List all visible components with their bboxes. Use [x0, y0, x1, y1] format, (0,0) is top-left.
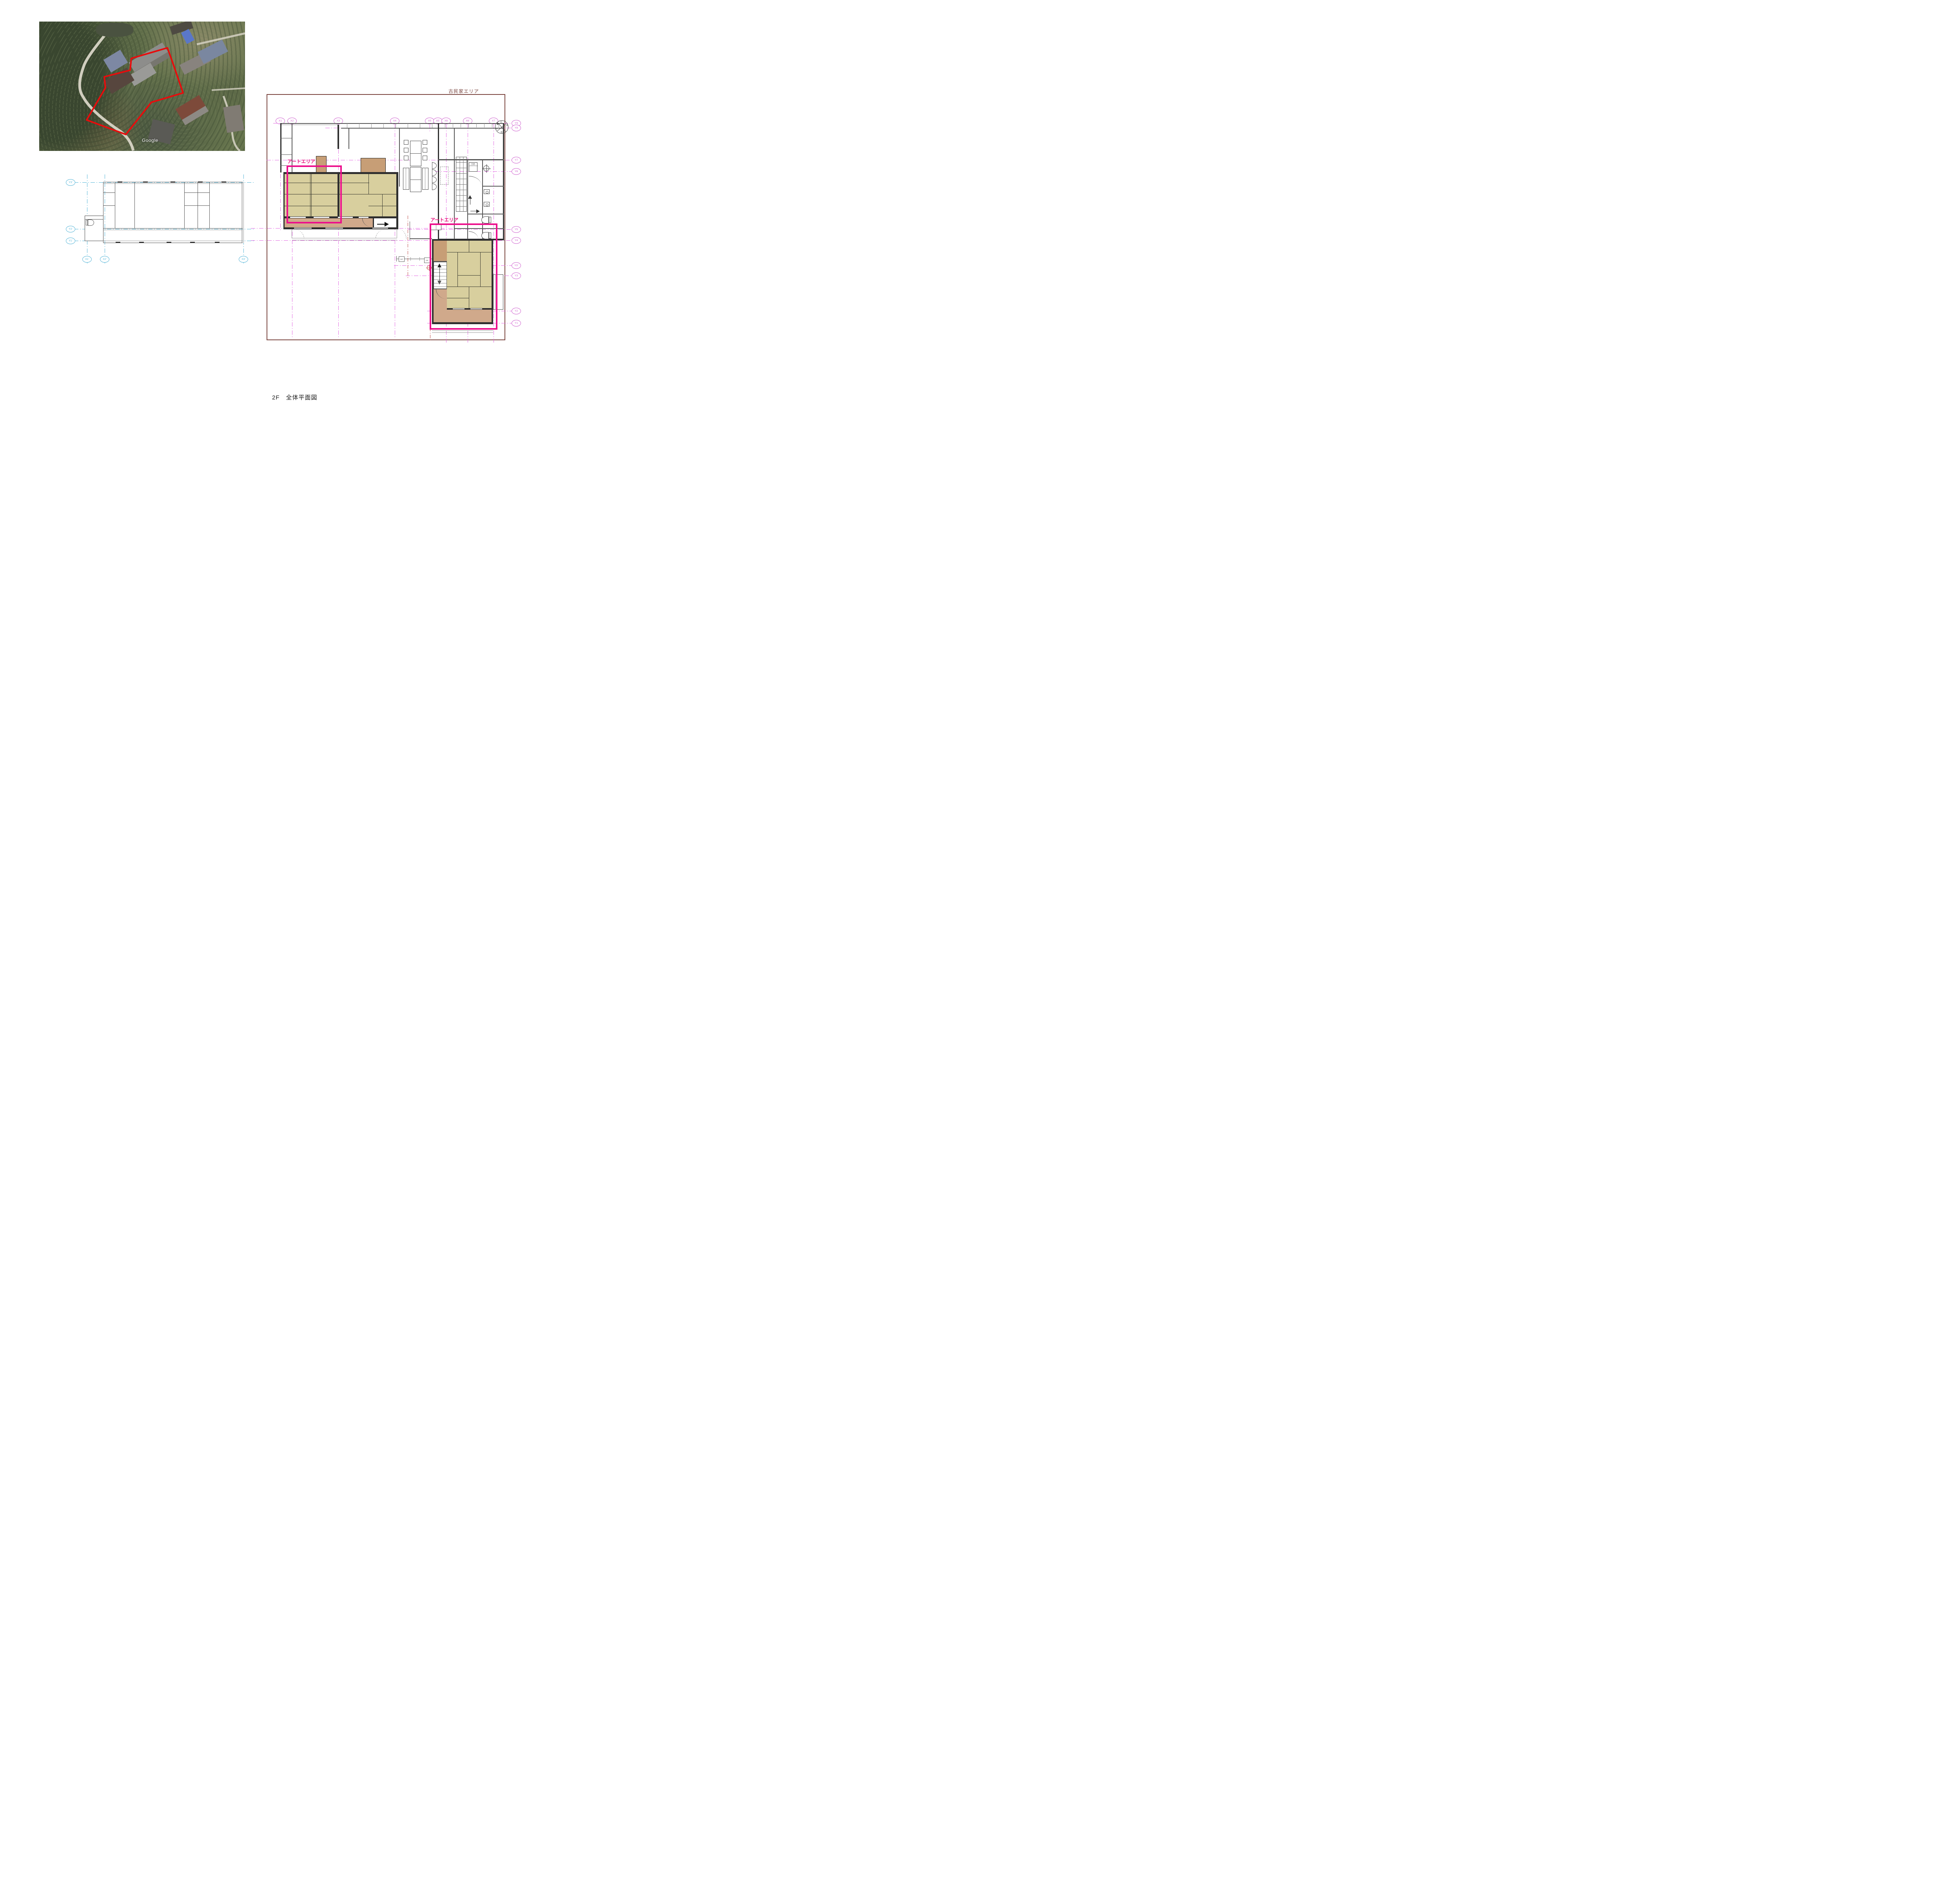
drawing-sheet: Google 古民家エリア X1X2X3X4X5X5'X6X6'X7Y9Y8Y7… — [0, 0, 606, 425]
rail-post — [396, 123, 396, 128]
rail-post — [359, 123, 359, 128]
sink-basin — [486, 191, 488, 194]
wall-top-rail — [280, 123, 504, 124]
shower-head — [483, 165, 489, 171]
north-compass: 北 東 西 南 — [495, 120, 508, 134]
mat-line — [368, 206, 396, 206]
mullion — [468, 123, 469, 127]
bench-line — [425, 168, 425, 190]
window — [294, 228, 312, 229]
chair — [423, 140, 427, 145]
rail-post — [347, 123, 347, 128]
tatami-room-east — [339, 174, 396, 216]
chair — [404, 140, 408, 145]
wall-hall — [348, 128, 349, 149]
mullion — [484, 123, 485, 127]
door-leaf — [432, 169, 437, 176]
mat-line — [382, 194, 383, 216]
art-area-label-upper: アートエリア — [287, 158, 315, 165]
wall-connector-bottom — [410, 238, 432, 239]
rail-post — [419, 257, 420, 261]
wall-bath-right — [503, 123, 504, 240]
mat-line — [339, 194, 396, 194]
door-leaf — [432, 162, 437, 169]
closet-shelf — [280, 154, 292, 155]
mullion — [445, 123, 445, 127]
wall-corridor-toilet — [467, 214, 504, 214]
wall-shower-sink — [482, 186, 504, 187]
arrow-shaft — [470, 211, 476, 211]
wall-connector — [410, 221, 410, 240]
dp-box-right: DP — [424, 258, 430, 263]
door-leaf — [432, 176, 437, 183]
chair — [423, 156, 427, 160]
compass-n: 北 — [500, 121, 502, 123]
arrow-shaft — [377, 224, 385, 225]
table-seam — [410, 153, 421, 154]
wall-top-main — [341, 128, 504, 129]
red-survey-line-1 — [408, 216, 408, 278]
dp-label: DP — [400, 258, 403, 260]
mullion — [461, 123, 461, 127]
chair — [423, 148, 427, 152]
rail-post — [396, 256, 397, 261]
wall-top-inner — [280, 125, 338, 125]
sink-1 — [484, 189, 490, 194]
rail-post — [432, 123, 432, 128]
eave-end — [292, 229, 292, 238]
dryer-label-3: W653×D674×H671 — [469, 166, 477, 167]
wall-x3-upper — [338, 125, 339, 149]
entry-arrow — [377, 222, 389, 227]
window — [372, 228, 388, 229]
compass-e: 東 — [506, 124, 508, 127]
arrow-head — [476, 209, 480, 213]
wall-tatami-right — [396, 172, 398, 229]
closet-dashed — [440, 167, 448, 185]
washer-dryer: 乾燥機 リンナイ W653×D674×H671 — [469, 162, 477, 172]
dp-box-left: DP — [399, 256, 405, 262]
bench — [403, 168, 409, 190]
chair — [404, 156, 408, 160]
entry-porch — [361, 158, 386, 173]
compass-s: 南 — [501, 131, 503, 134]
sink-basin — [486, 203, 488, 206]
eave-line — [292, 240, 397, 240]
bench — [422, 168, 428, 190]
table-seam — [410, 180, 421, 180]
toilet-bowl — [481, 216, 489, 223]
mullion — [492, 123, 492, 127]
rail-post — [408, 123, 408, 128]
mullion — [453, 123, 453, 127]
art-area-box-lower — [430, 223, 497, 330]
door-leaf — [432, 183, 437, 190]
rail-post — [410, 257, 411, 261]
dp-label: DP — [426, 259, 428, 261]
rail-post — [371, 123, 372, 128]
window — [359, 217, 368, 218]
shower-cross — [482, 169, 491, 169]
sheet-title: 2F 全体平面図 — [272, 393, 318, 401]
wall-hall-east — [399, 128, 400, 187]
window — [325, 228, 343, 229]
toilet-upper — [481, 216, 491, 223]
mullion — [476, 123, 477, 127]
rail-post — [383, 123, 384, 128]
arrow-shaft — [470, 198, 470, 205]
art-area-box-upper — [287, 165, 342, 223]
sink-2 — [484, 202, 490, 207]
bench-line — [406, 168, 406, 190]
shoji-screen — [456, 157, 467, 212]
closet-shelf — [280, 138, 292, 138]
arrow-head — [385, 222, 389, 227]
flow-arrow-right — [470, 209, 480, 213]
mat-line — [339, 183, 369, 183]
art-area-label-lower: アートエリア — [430, 216, 458, 223]
folding-door — [432, 162, 437, 190]
eave-line-south — [432, 332, 493, 333]
flow-arrow-up — [468, 195, 472, 205]
rail-post — [420, 123, 420, 128]
mat-line — [368, 174, 369, 194]
wall-bath-upper — [438, 159, 504, 160]
eave-line-south — [432, 330, 493, 331]
compass-w: 西 — [495, 127, 497, 130]
toilet-tank — [489, 217, 491, 223]
chair — [404, 148, 408, 152]
